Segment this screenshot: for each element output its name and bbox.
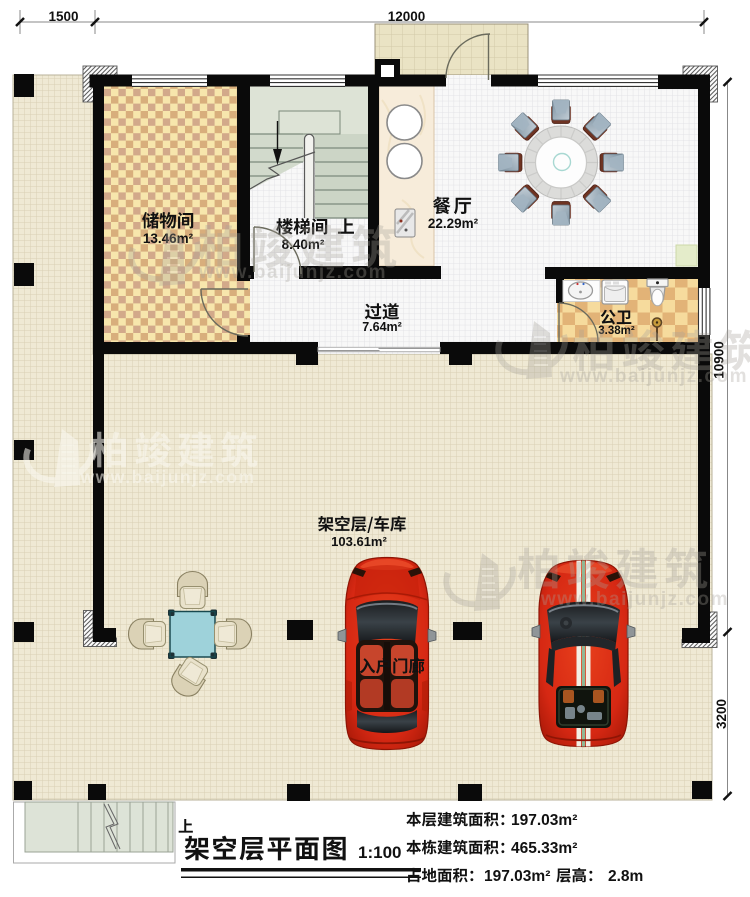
svg-text:www.baijunjz.com: www.baijunjz.com bbox=[79, 467, 255, 487]
svg-text:3200: 3200 bbox=[714, 699, 729, 729]
svg-text:465.33m²: 465.33m² bbox=[511, 840, 577, 857]
svg-text:7.64m²: 7.64m² bbox=[362, 320, 402, 334]
svg-text:12000: 12000 bbox=[388, 9, 426, 24]
svg-text:197.03m²: 197.03m² bbox=[511, 812, 577, 829]
svg-text:2.8m: 2.8m bbox=[608, 868, 643, 885]
svg-text:1:100: 1:100 bbox=[358, 843, 401, 862]
svg-text:197.03m²: 197.03m² bbox=[484, 868, 550, 885]
svg-text:22.29m²: 22.29m² bbox=[428, 216, 479, 231]
svg-text:www.baijunjz.com: www.baijunjz.com bbox=[559, 366, 748, 387]
svg-text:1500: 1500 bbox=[48, 9, 78, 24]
svg-text:103.61m²: 103.61m² bbox=[331, 534, 387, 549]
svg-text:www.baijunjz.com: www.baijunjz.com bbox=[198, 262, 387, 283]
svg-text:www.baijunjz.com: www.baijunjz.com bbox=[540, 589, 729, 610]
